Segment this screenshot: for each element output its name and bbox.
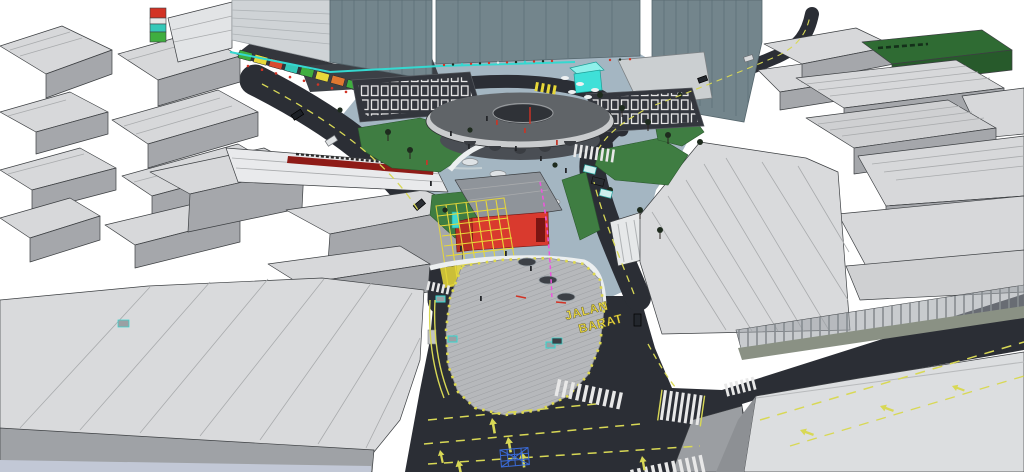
building-southwest: [0, 278, 424, 472]
model-viewport[interactable]: JALAN BARAT: [0, 0, 1024, 472]
billboard-tower: [150, 8, 166, 42]
tower-center: [436, 0, 640, 64]
